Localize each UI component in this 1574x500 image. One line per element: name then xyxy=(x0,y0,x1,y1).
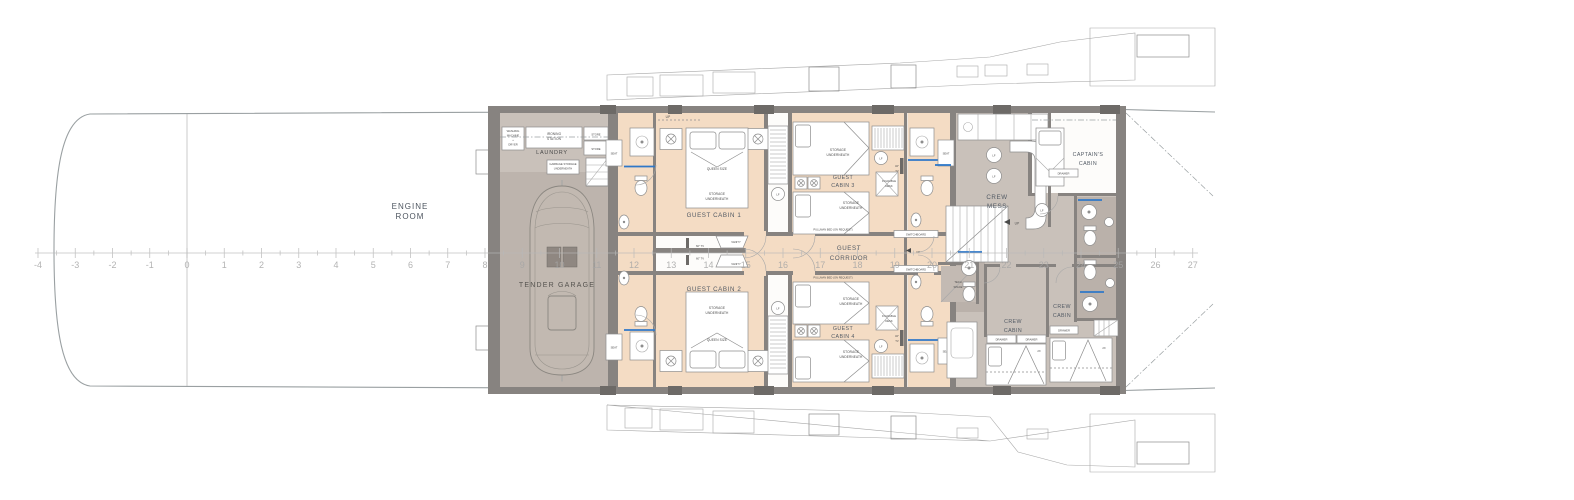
label-queen-2: QUEEN SIZE xyxy=(707,338,727,342)
svg-text:UNDERNEATH: UNDERNEATH xyxy=(840,355,863,359)
label-lf: LF xyxy=(776,193,779,197)
label-vanity-2: VANITY xyxy=(731,262,741,266)
ruler-number: 18 xyxy=(852,260,862,270)
svg-text:STORAGE: STORAGE xyxy=(843,297,859,301)
ruler-number: 15 xyxy=(741,260,751,270)
svg-text:CABIN: CABIN xyxy=(1004,328,1022,334)
ruler-number: 0 xyxy=(184,260,189,270)
ruler-number: 4 xyxy=(333,260,338,270)
shower-right-bottom xyxy=(910,344,934,372)
ruler-number: 13 xyxy=(666,260,676,270)
shower-left-top xyxy=(630,128,654,156)
svg-text:UNDERNEATH: UNDERNEATH xyxy=(827,153,850,157)
label-guest-cabin-4: GUEST xyxy=(833,326,854,332)
label-pullman-3: PULLMAN BED (ON REQUEST) xyxy=(813,228,852,232)
label-up-cabin1: UP xyxy=(666,115,671,119)
svg-text:CABIN 4: CABIN 4 xyxy=(831,334,854,340)
toilet-left-bottom xyxy=(635,307,647,327)
label-crew-cabin-right: CREW xyxy=(1053,304,1071,310)
nightstand-icon xyxy=(808,177,820,189)
svg-text:LF: LF xyxy=(776,307,779,311)
label-store-1: STORE xyxy=(591,133,600,137)
ruler-number: 24 xyxy=(1076,260,1086,270)
nightstand-icon xyxy=(808,325,820,337)
ruler-number: -1 xyxy=(146,260,154,270)
toilet-crew-mid xyxy=(963,282,975,302)
label-guest-cabin-3: GUEST xyxy=(833,175,854,181)
svg-text:CABIN 3: CABIN 3 xyxy=(831,183,854,189)
svg-text:UNDERNEATH: UNDERNEATH xyxy=(706,197,729,201)
label-garbage: GARBAGE STORAGE xyxy=(549,162,576,166)
label-crew-cabin-mid: CREW xyxy=(1004,319,1022,325)
svg-text:LF: LF xyxy=(1040,209,1043,213)
ruler-number: 17 xyxy=(815,260,825,270)
ruler-number: 3 xyxy=(296,260,301,270)
toilet-captain xyxy=(1084,226,1096,246)
svg-text:FOLDABLE: FOLDABLE xyxy=(882,179,896,183)
crew-stairs-right xyxy=(1094,320,1118,336)
svg-text:STORAGE: STORAGE xyxy=(843,350,859,354)
svg-text:STORAGE: STORAGE xyxy=(709,192,725,196)
nightstand-icon xyxy=(795,325,807,337)
label-switchboard-bottom: SWITCHBOARD xyxy=(906,268,926,272)
label-drawer-captain: DRAWER xyxy=(1058,172,1070,176)
wardrobe-icon xyxy=(747,129,769,150)
deck-plan-svg: WASHING MACHINE + DRYER IRONING STATION … xyxy=(0,0,1574,500)
svg-text:DRAWER: DRAWER xyxy=(1058,329,1070,333)
label-vanity-1: VANITY xyxy=(731,240,741,244)
svg-text:DRAWER: DRAWER xyxy=(1026,338,1038,342)
galley-counter xyxy=(958,114,1048,140)
toilet-right-bottom xyxy=(921,307,933,327)
ruler-number: 25 xyxy=(1113,260,1123,270)
ruler-number: 22 xyxy=(1001,260,1011,270)
label-engine-room: ENGINE xyxy=(392,202,429,211)
label-switchboard-top: SWITCHBOARD xyxy=(906,233,926,237)
ruler-number: 26 xyxy=(1150,260,1160,270)
basin-right-top xyxy=(911,213,921,227)
label-seat-left-bottom: SEAT xyxy=(611,346,618,350)
basin-right-bottom xyxy=(911,275,921,289)
label-tender-garage: TENDER GARAGE xyxy=(519,282,595,289)
label-ironing: IRONING xyxy=(547,132,562,136)
ruler-number: 1 xyxy=(222,260,227,270)
label-laundry: LAUNDRY xyxy=(536,150,568,156)
yacht-lower-deck-plan: WASHING MACHINE + DRYER IRONING STATION … xyxy=(0,0,1574,500)
wardrobe-icon xyxy=(747,351,769,372)
svg-text:ROOM: ROOM xyxy=(396,212,425,221)
label-2x-right: 2X xyxy=(1102,346,1105,350)
ruler-number: 20 xyxy=(927,260,937,270)
label-up-crew: UP xyxy=(1015,222,1020,226)
svg-text:CABIN: CABIN xyxy=(1079,161,1097,167)
ruler-number: -4 xyxy=(34,260,42,270)
ruler-number: 8 xyxy=(482,260,487,270)
shower-right-top xyxy=(910,128,934,156)
svg-text:TV: TV xyxy=(895,339,899,343)
toilet-right-top xyxy=(921,176,933,196)
svg-text:DESK: DESK xyxy=(885,184,893,188)
ruler-number: 7 xyxy=(445,260,450,270)
label-tv-cabin3: 32" xyxy=(895,164,899,168)
label-seat-right-top: SEAT xyxy=(943,152,950,156)
svg-text:TV: TV xyxy=(895,169,899,173)
ruler-number: -2 xyxy=(108,260,116,270)
label-washing: WASHING xyxy=(507,129,520,133)
toilet-left-top xyxy=(635,176,647,196)
svg-text:FOLDABLE: FOLDABLE xyxy=(882,314,896,318)
svg-text:STATION: STATION xyxy=(547,137,562,141)
ruler-number: 10 xyxy=(554,260,564,270)
superstructure-window-band-bottom xyxy=(607,405,1215,472)
superstructure-window-band-top xyxy=(607,28,1215,100)
svg-text:STORAGE: STORAGE xyxy=(843,201,859,205)
svg-text:DRYER: DRYER xyxy=(508,143,517,147)
escape-ladder-bottom xyxy=(768,316,788,374)
svg-text:LF: LF xyxy=(992,154,995,158)
locker-vent-bottom xyxy=(872,354,904,378)
svg-text:MESS: MESS xyxy=(987,203,1007,210)
svg-text:UNDERNEATH: UNDERNEATH xyxy=(554,167,573,171)
svg-text:CABIN: CABIN xyxy=(1053,313,1071,319)
label-captains-cabin: CAPTAIN'S xyxy=(1073,152,1104,158)
svg-text:DRAWER: DRAWER xyxy=(996,338,1008,342)
label-tv-cabin4: 32" xyxy=(895,334,899,338)
svg-text:STORAGE: STORAGE xyxy=(830,148,846,152)
wardrobe-icon xyxy=(660,129,682,150)
label-guest-cabin-1: GUEST CABIN 1 xyxy=(687,212,742,219)
svg-text:LF: LF xyxy=(992,175,995,179)
svg-text:MACHINE: MACHINE xyxy=(507,134,520,138)
label-seat-left-top: SEAT xyxy=(611,152,618,156)
svg-text:DESK: DESK xyxy=(885,319,893,323)
label-store-2: STORE xyxy=(591,147,600,151)
ruler-number: -3 xyxy=(71,260,79,270)
tender-boat xyxy=(530,186,594,375)
basin-left-top xyxy=(619,215,629,229)
ruler-number: 2 xyxy=(259,260,264,270)
main-staircase: UP xyxy=(946,206,1019,262)
label-guest-cabin-2: GUEST CABIN 2 xyxy=(687,286,742,293)
svg-text:SPACE: SPACE xyxy=(954,285,963,289)
basin-left-bottom xyxy=(619,271,629,285)
shower-left-bottom xyxy=(630,332,654,360)
ruler-number: 21 xyxy=(964,260,974,270)
ruler-number: 23 xyxy=(1039,260,1049,270)
ruler-number: 9 xyxy=(520,260,525,270)
ruler-number: 19 xyxy=(890,260,900,270)
svg-text:STORAGE: STORAGE xyxy=(709,306,725,310)
label-crew-mess: CREW xyxy=(986,194,1007,201)
svg-text:UNDERNEATH: UNDERNEATH xyxy=(840,206,863,210)
ruler-number: 11 xyxy=(592,260,601,270)
label-pullman-4: PULLMAN BED (ON REQUEST) xyxy=(813,276,852,280)
ruler-number: 27 xyxy=(1188,260,1198,270)
label-tv-cabin1: 60" TV xyxy=(696,244,704,248)
escape-ladder-top xyxy=(768,126,788,184)
label-2x-mid: 2X xyxy=(1037,349,1040,353)
label-queen-1: QUEEN SIZE xyxy=(707,167,727,171)
ruler-number: 5 xyxy=(371,260,376,270)
ruler-number: 6 xyxy=(408,260,413,270)
label-tech-space: TECH xyxy=(954,280,961,284)
laundry-stairs xyxy=(586,158,608,186)
svg-text:LF: LF xyxy=(879,157,882,161)
svg-text:UNDERNEATH: UNDERNEATH xyxy=(706,311,729,315)
ruler-number: 12 xyxy=(629,260,639,270)
ruler-number: 14 xyxy=(703,260,713,270)
locker-vent-top xyxy=(872,126,904,150)
nightstand-icon xyxy=(795,177,807,189)
wardrobe-icon xyxy=(660,351,682,372)
ruler-number: 16 xyxy=(778,260,788,270)
svg-text:LF: LF xyxy=(879,345,882,349)
engine-room: ENGINE ROOM xyxy=(392,202,429,221)
svg-text:UNDERNEATH: UNDERNEATH xyxy=(840,302,863,306)
